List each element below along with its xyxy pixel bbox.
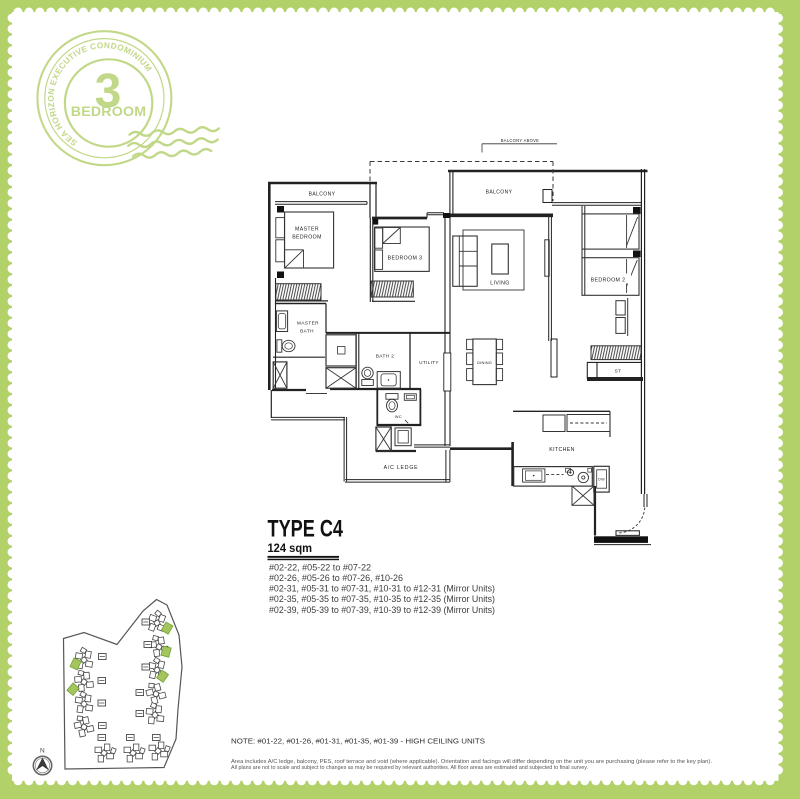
svg-text:BALCONY ABOVE: BALCONY ABOVE <box>501 138 539 143</box>
svg-text:DINING: DINING <box>477 360 492 365</box>
svg-text:ST: ST <box>615 369 622 374</box>
svg-text:BALCONY: BALCONY <box>309 192 336 198</box>
svg-text:BEDROOM 2: BEDROOM 2 <box>591 278 626 284</box>
svg-text:DW: DW <box>598 478 605 482</box>
svg-text:LIVING: LIVING <box>490 281 509 287</box>
svg-text:WC: WC <box>395 414 402 419</box>
svg-text:A/C LEDGE: A/C LEDGE <box>384 465 419 471</box>
svg-text:MASTER: MASTER <box>297 321 319 326</box>
svg-text:BEDROOM 3: BEDROOM 3 <box>388 256 423 262</box>
svg-text:KITCHEN: KITCHEN <box>549 447 575 453</box>
svg-text:BALCONY: BALCONY <box>486 190 513 196</box>
svg-text:MASTER: MASTER <box>295 227 319 233</box>
svg-text:NOTE: #01-22, #01-26, #01-31,: NOTE: #01-22, #01-26, #01-31, #01-35, #0… <box>231 737 485 746</box>
svg-text:#02-39, #05-39 to #07-39, #10-: #02-39, #05-39 to #07-39, #10-39 to #12-… <box>269 605 495 615</box>
svg-text:#02-31, #05-31 to #07-31, #10-: #02-31, #05-31 to #07-31, #10-31 to #12-… <box>269 584 495 594</box>
svg-text:All plans are not to scale and: All plans are not to scale and subject t… <box>231 765 588 771</box>
svg-text:BATH: BATH <box>300 329 314 334</box>
svg-text:TYPE C4: TYPE C4 <box>268 516 344 543</box>
svg-text:UTILITY: UTILITY <box>419 360 439 365</box>
svg-text:#02-22, #05-22 to #07-22: #02-22, #05-22 to #07-22 <box>269 562 371 572</box>
svg-text:124 sqm: 124 sqm <box>268 541 313 555</box>
svg-text:BATH 2: BATH 2 <box>376 354 394 359</box>
svg-text:#02-35, #05-35 to #07-35, #10-: #02-35, #05-35 to #07-35, #10-35 to #12-… <box>269 594 495 604</box>
svg-text:N: N <box>40 748 45 755</box>
svg-text:#02-26, #05-26 to #07-26, #10-: #02-26, #05-26 to #07-26, #10-26 <box>269 573 403 583</box>
svg-text:BEDROOM: BEDROOM <box>292 235 322 241</box>
svg-text:BEDROOM: BEDROOM <box>71 104 147 120</box>
